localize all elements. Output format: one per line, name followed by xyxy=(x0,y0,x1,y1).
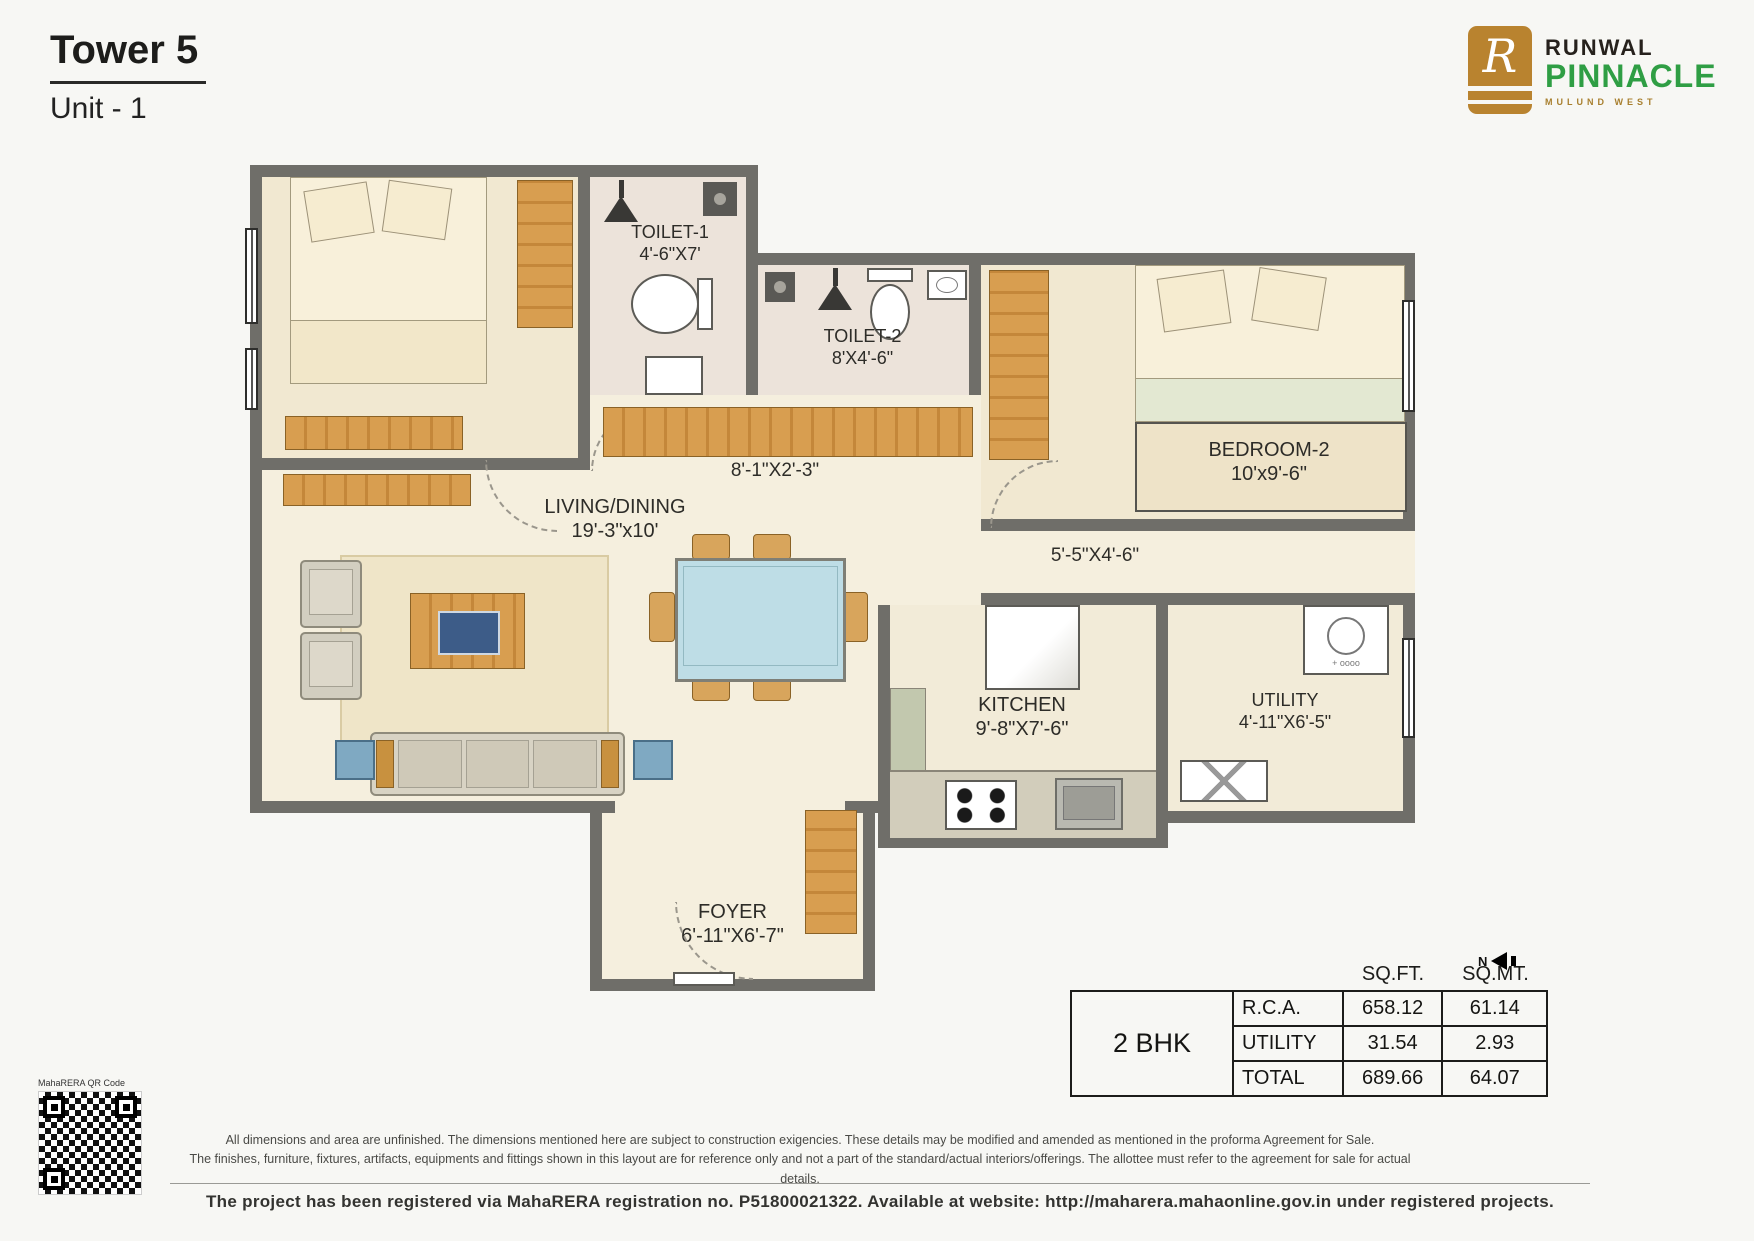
label-toilet-2: TOILET-2 8'X4'-6" xyxy=(755,326,970,369)
label-passage-2: 5'-5"X4'-6" xyxy=(985,545,1205,568)
runwal-pinnacle-logo: R RUNWAL PINNACLE MULUND WEST xyxy=(1468,26,1717,114)
pillow xyxy=(382,180,453,240)
label-kitchen: KITCHEN 9'-8"X7'-6" xyxy=(927,693,1117,741)
pillow xyxy=(1157,270,1232,333)
shower-head-icon xyxy=(818,284,852,310)
col-header-sqft: SQ.FT. xyxy=(1343,963,1443,986)
hob-icon: + oooo xyxy=(1303,605,1389,675)
unit-subtitle: Unit - 1 xyxy=(50,92,147,126)
utility-sqft: 31.54 xyxy=(1343,1026,1443,1061)
row-label: UTILITY xyxy=(1233,1026,1343,1061)
bed-2-blanket xyxy=(1135,378,1405,422)
stove-icon xyxy=(945,780,1017,830)
wash-area-icon xyxy=(1180,760,1268,802)
logo-project-text: PINNACLE xyxy=(1545,59,1717,94)
vent-icon xyxy=(765,272,795,302)
logo-r-glyph: R xyxy=(1483,33,1518,79)
passage-floor-kitchen xyxy=(878,470,981,605)
coffee-table-top xyxy=(438,611,500,655)
window-bedroom-2 xyxy=(1402,300,1415,412)
washbasin-icon xyxy=(927,270,967,300)
dining-chair xyxy=(692,534,730,560)
row-label: R.C.A. xyxy=(1233,991,1343,1026)
wc-tank-toilet-1 xyxy=(697,278,713,330)
sink-icon xyxy=(1055,778,1123,830)
logo-location-text: MULUND WEST xyxy=(1545,97,1717,107)
kitchen-counter-left xyxy=(890,688,926,774)
fridge xyxy=(985,605,1080,690)
row-label: TOTAL xyxy=(1233,1061,1343,1096)
sofa xyxy=(370,732,625,796)
cabinet-living-left xyxy=(283,474,471,506)
label-toilet-1: TOILET-1 4'-6"X7' xyxy=(585,222,755,265)
qr-code-label: MahaRERA QR Code xyxy=(38,1078,125,1088)
unit-type-cell: 2 BHK xyxy=(1071,991,1233,1096)
window-utility xyxy=(1402,638,1415,738)
disclaimer-text: All dimensions and area are unfinished. … xyxy=(170,1131,1430,1189)
foyer-cabinet xyxy=(805,810,857,934)
maharera-qr-code xyxy=(38,1091,142,1195)
col-header-sqmt: SQ.MT. xyxy=(1443,963,1548,986)
wardrobe-bedroom-1 xyxy=(517,180,573,328)
wc-bowl-toilet-1 xyxy=(631,274,699,334)
footer-divider xyxy=(170,1183,1590,1184)
rca-sqmt: 61.14 xyxy=(1442,991,1547,1026)
disclaimer-line-1: All dimensions and area are unfinished. … xyxy=(170,1131,1430,1150)
window-bedroom-1 xyxy=(245,228,258,324)
entrance-door xyxy=(673,972,735,986)
label-passage-1: 8'-1"X2'-3" xyxy=(625,460,925,483)
logo-monogram-mark: R xyxy=(1468,26,1532,114)
utility-sqmt: 2.93 xyxy=(1442,1026,1547,1061)
dining-table xyxy=(675,558,846,682)
shower-head-icon xyxy=(604,196,638,222)
logo-brand-text: RUNWAL xyxy=(1545,36,1717,59)
page-title: Tower 5 xyxy=(50,28,206,84)
total-sqmt: 64.07 xyxy=(1442,1061,1547,1096)
pillow xyxy=(303,181,374,242)
dining-chair xyxy=(753,534,791,560)
rca-sqft: 658.12 xyxy=(1343,991,1443,1026)
area-table-grid: 2 BHK R.C.A. 658.12 61.14 UTILITY 31.54 … xyxy=(1070,990,1548,1097)
dresser-bedroom-1 xyxy=(285,416,463,450)
armchair xyxy=(300,632,362,700)
pillow xyxy=(1251,267,1327,331)
side-table xyxy=(633,740,673,780)
label-utility: UTILITY 4'-11"X6'-5" xyxy=(1185,690,1385,733)
armchair xyxy=(300,560,362,628)
vent-icon xyxy=(703,182,737,216)
table-row: 2 BHK R.C.A. 658.12 61.14 xyxy=(1071,991,1547,1026)
bed-1-blanket xyxy=(290,320,487,384)
total-sqft: 689.66 xyxy=(1343,1061,1443,1096)
rera-registration-text: The project has been registered via Maha… xyxy=(90,1192,1670,1212)
label-bedroom-2: BEDROOM-2 10'x9'-6" xyxy=(1137,438,1401,486)
window-bedroom-1-lower xyxy=(245,348,258,410)
dining-chair xyxy=(649,592,675,642)
wardrobe-bedroom-2 xyxy=(989,270,1049,460)
area-table: SQ.FT. SQ.MT. 2 BHK R.C.A. 658.12 61.14 … xyxy=(1070,958,1548,1097)
floor-plan: TOILET-1 4'-6"X7' TOILET-2 8'X4'-6" BEDR… xyxy=(245,160,1460,995)
side-table xyxy=(335,740,375,780)
door-toilet-1 xyxy=(645,356,703,395)
wc-tank-toilet-2 xyxy=(867,268,913,282)
corridor-wardrobe xyxy=(603,407,973,457)
